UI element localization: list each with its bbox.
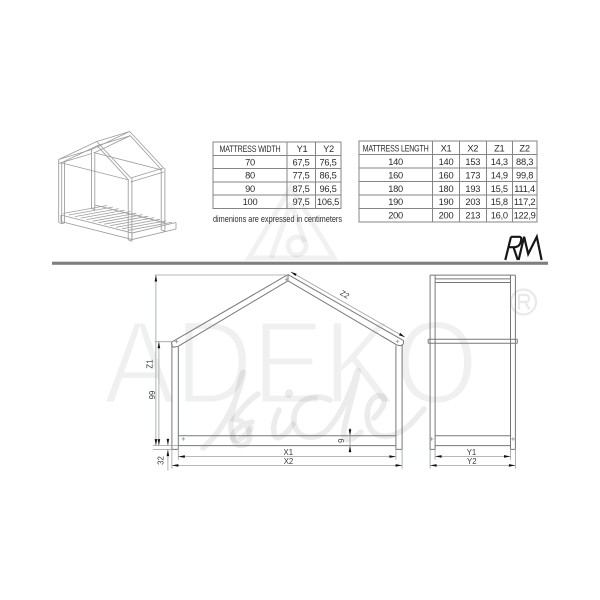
svg-text:86,5: 86,5 bbox=[319, 171, 336, 181]
svg-text:100: 100 bbox=[243, 197, 258, 207]
svg-text:Y2: Y2 bbox=[467, 457, 477, 466]
svg-text:MATTRESS WIDTH: MATTRESS WIDTH bbox=[220, 144, 281, 155]
svg-text:77,5: 77,5 bbox=[292, 171, 309, 181]
svg-text:99,8: 99,8 bbox=[516, 170, 533, 180]
svg-text:Y1: Y1 bbox=[467, 448, 477, 457]
svg-text:203: 203 bbox=[465, 197, 480, 207]
svg-text:X2: X2 bbox=[467, 143, 478, 153]
svg-text:67,5: 67,5 bbox=[292, 157, 309, 167]
svg-text:16,0: 16,0 bbox=[491, 211, 508, 221]
svg-text:X2: X2 bbox=[284, 457, 294, 466]
svg-text:173: 173 bbox=[465, 170, 480, 180]
svg-text:180: 180 bbox=[439, 184, 454, 194]
svg-text:90: 90 bbox=[245, 184, 255, 194]
svg-text:14,9: 14,9 bbox=[491, 170, 508, 180]
svg-text:Y1: Y1 bbox=[297, 144, 308, 154]
svg-text:190: 190 bbox=[388, 197, 403, 207]
svg-text:15,5: 15,5 bbox=[491, 184, 508, 194]
svg-text:111,4: 111,4 bbox=[514, 184, 535, 194]
svg-text:160: 160 bbox=[439, 170, 454, 180]
svg-text:MATTRESS LENGTH: MATTRESS LENGTH bbox=[363, 143, 429, 154]
svg-text:117,2: 117,2 bbox=[514, 197, 535, 207]
svg-text:32: 32 bbox=[156, 456, 165, 465]
svg-text:180: 180 bbox=[388, 184, 403, 194]
svg-text:15,8: 15,8 bbox=[491, 197, 508, 207]
svg-text:97,5: 97,5 bbox=[292, 197, 309, 207]
svg-text:99: 99 bbox=[148, 391, 157, 400]
svg-text:76,5: 76,5 bbox=[319, 157, 336, 167]
svg-text:200: 200 bbox=[439, 211, 454, 221]
svg-text:190: 190 bbox=[439, 197, 454, 207]
svg-text:122,9: 122,9 bbox=[514, 211, 536, 221]
svg-text:87,5: 87,5 bbox=[292, 184, 309, 194]
svg-text:Z1: Z1 bbox=[494, 143, 504, 153]
svg-text:193: 193 bbox=[465, 184, 480, 194]
svg-text:70: 70 bbox=[245, 157, 255, 167]
svg-text:Y2: Y2 bbox=[323, 144, 334, 154]
svg-text:14,3: 14,3 bbox=[491, 157, 508, 167]
svg-text:80: 80 bbox=[245, 171, 255, 181]
svg-text:106,5: 106,5 bbox=[317, 197, 339, 207]
svg-text:140: 140 bbox=[388, 157, 403, 167]
svg-text:Z2: Z2 bbox=[519, 143, 529, 153]
svg-text:200: 200 bbox=[388, 211, 403, 221]
svg-text:88,3: 88,3 bbox=[516, 157, 533, 167]
svg-text:160: 160 bbox=[388, 170, 403, 180]
svg-text:9: 9 bbox=[337, 439, 346, 443]
svg-text:96,5: 96,5 bbox=[319, 184, 336, 194]
svg-text:X1: X1 bbox=[441, 143, 452, 153]
svg-text:140: 140 bbox=[439, 157, 454, 167]
svg-text:Z1: Z1 bbox=[145, 359, 154, 368]
svg-text:213: 213 bbox=[465, 211, 480, 221]
svg-text:153: 153 bbox=[465, 157, 480, 167]
svg-text:dimenions are expressed in cen: dimenions are expressed in centimeters bbox=[213, 213, 342, 224]
svg-text:X1: X1 bbox=[284, 448, 294, 457]
